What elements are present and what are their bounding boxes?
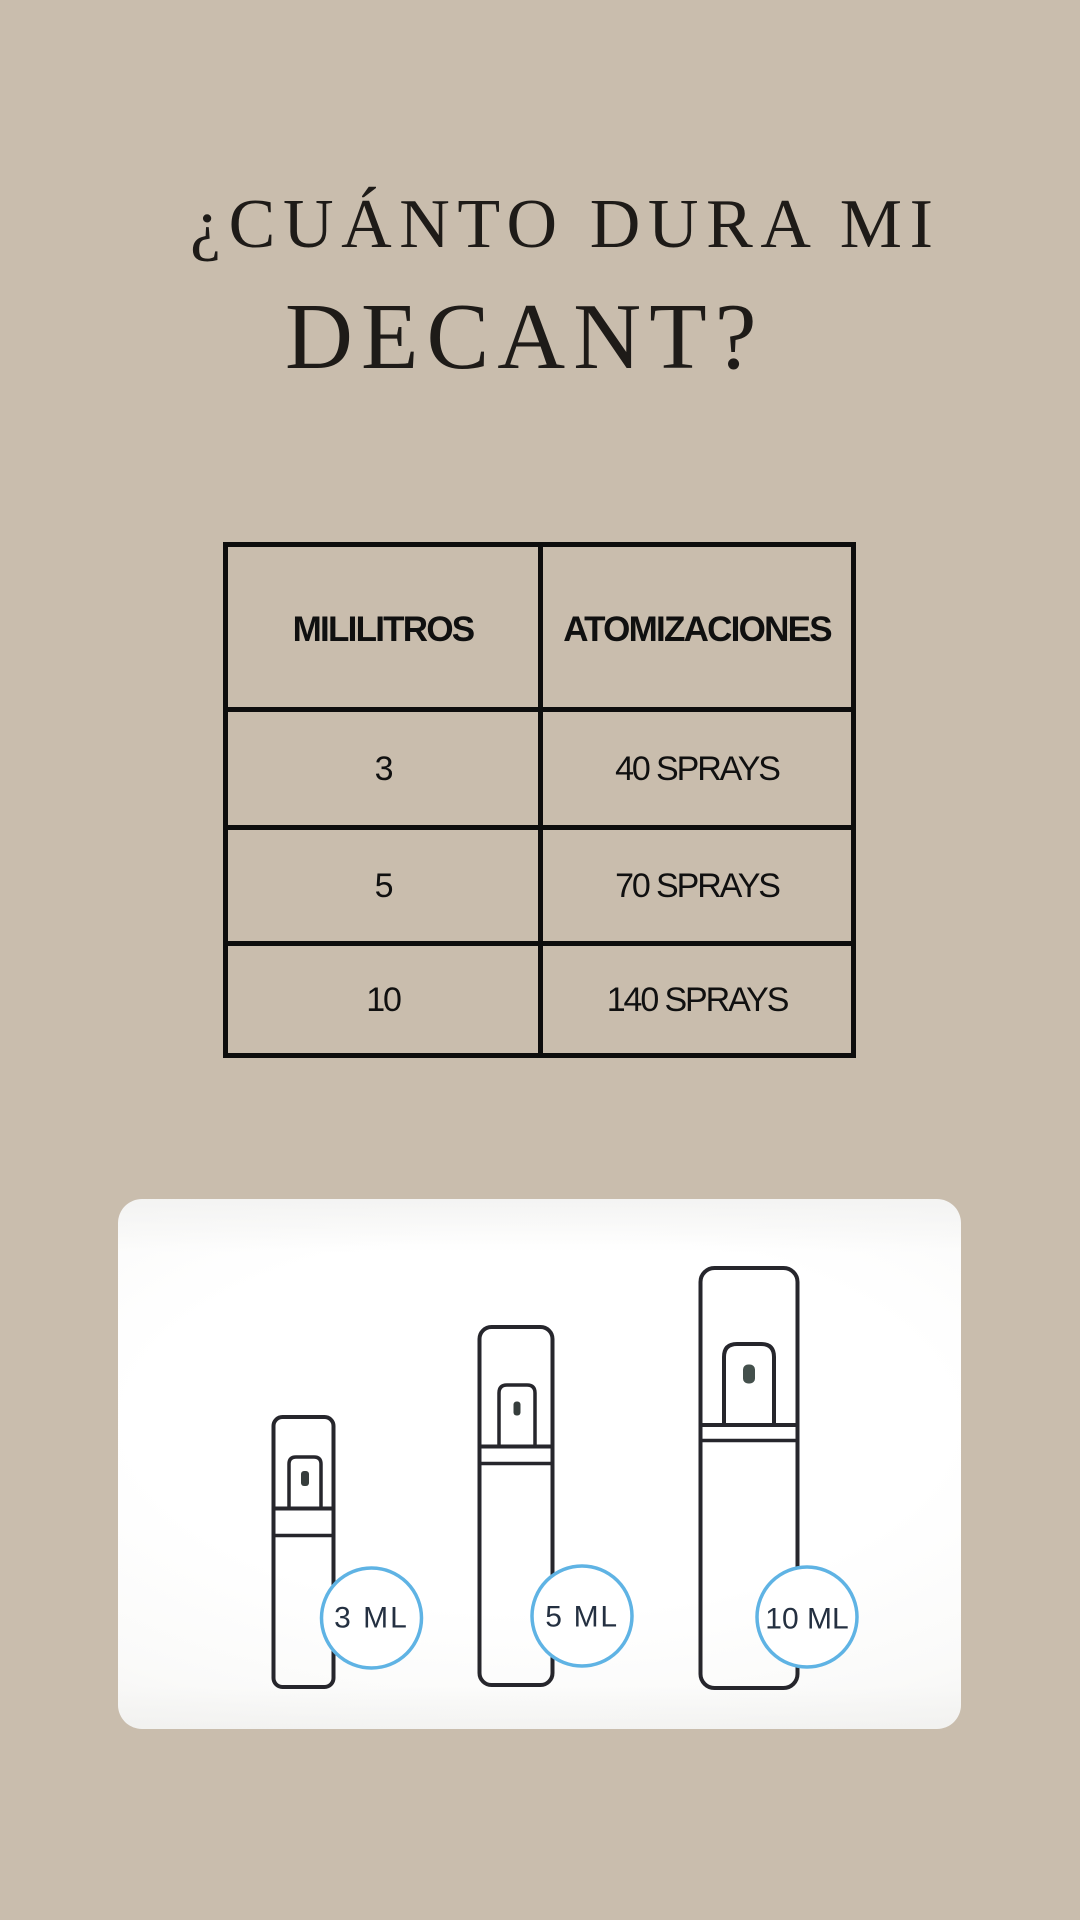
svg-text:5 ML: 5 ML (545, 1601, 619, 1634)
svg-text:10 ML: 10 ML (765, 1603, 848, 1636)
svg-text:3 ML: 3 ML (334, 1602, 409, 1635)
